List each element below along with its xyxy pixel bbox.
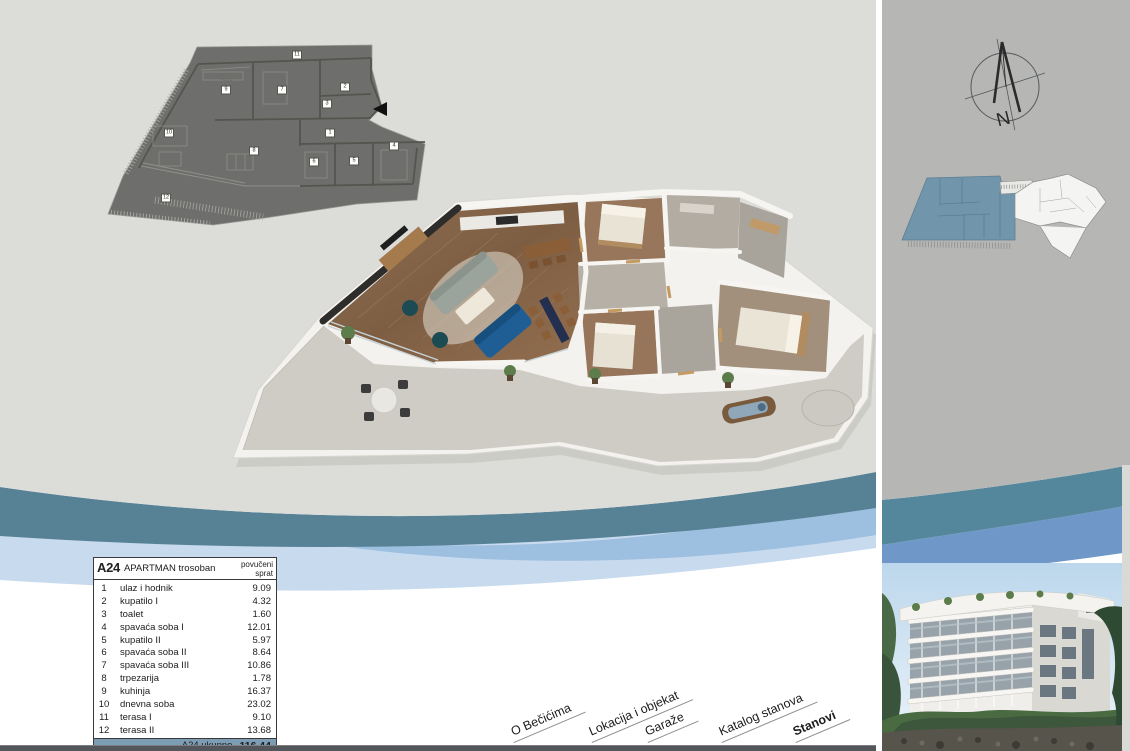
room-name: dnevna soba (114, 699, 229, 710)
room-area: 16.37 (229, 686, 276, 697)
room-area: 13.68 (229, 725, 276, 736)
room-name: spavaća soba III (114, 660, 229, 671)
site-locator-plan (900, 168, 1118, 276)
dimension-label: 340 (288, 77, 296, 82)
room-area: 9.10 (229, 712, 276, 723)
room-name: kupatilo I (114, 596, 229, 607)
table-row: 4spavaća soba I12.01 (94, 621, 276, 634)
room-number: 2 (340, 83, 350, 92)
room-number: 1 (325, 129, 335, 138)
table-row: 5kupatilo II5.97 (94, 634, 276, 647)
bottom-bar (0, 745, 876, 751)
table-row: 11terasa I9.10 (94, 711, 276, 724)
table-row: 6spavaća soba II8.64 (94, 646, 276, 659)
table-row: 2kupatilo I4.32 (94, 595, 276, 608)
room-number: 7 (277, 86, 287, 95)
room-number: 9 (221, 86, 231, 95)
room-number: 11 (292, 51, 302, 60)
column-header-line1: povučeni (241, 560, 273, 569)
room-name: terasa I (114, 712, 229, 723)
room-area: 1.60 (229, 609, 276, 620)
room-number: 4 (389, 142, 399, 151)
apartment-area-table: A24 APARTMAN trosoban povučeni sprat 1ul… (93, 557, 277, 751)
row-number: 4 (94, 622, 114, 633)
photo-right-margin (1122, 465, 1130, 751)
room-name: spavaća soba I (114, 622, 229, 633)
room-area: 5.97 (229, 635, 276, 646)
room-number: 12 (161, 194, 171, 203)
highlighted-apartment-shape (902, 176, 1015, 240)
floor-plan-2d: 1 2 3 4 5 6 7 8 9 10 11 12 480.5 340 514… (95, 28, 440, 253)
floor-plan-2d-drawing (95, 28, 440, 253)
room-area: 4.32 (229, 596, 276, 607)
area-table-header: A24 APARTMAN trosoban povučeni sprat (94, 558, 276, 580)
room-number: 10 (164, 129, 174, 138)
row-number: 12 (94, 725, 114, 736)
row-number: 1 (94, 583, 114, 594)
row-number: 6 (94, 647, 114, 658)
unit-code: A24 (97, 560, 120, 575)
adjacent-apartment-outline (1015, 174, 1106, 258)
compass-icon: N (963, 35, 1048, 130)
row-number: 2 (94, 596, 114, 607)
row-number: 10 (94, 699, 114, 710)
room-number: 8 (249, 147, 259, 156)
room-number: 3 (322, 100, 332, 109)
room-name: toalet (114, 609, 229, 620)
table-row: 1ulaz i hodnik9.09 (94, 582, 276, 595)
table-row: 12terasa II13.68 (94, 724, 276, 737)
room-number: 5 (349, 157, 359, 166)
right-panel: N (882, 0, 1130, 751)
room-number: 6 (309, 158, 319, 167)
room-area: 10.86 (229, 660, 276, 671)
room-area: 12.01 (229, 622, 276, 633)
table-row: 10dnevna soba23.02 (94, 698, 276, 711)
row-number: 7 (94, 660, 114, 671)
room-name: terasa II (114, 725, 229, 736)
table-row: 3toalet1.60 (94, 608, 276, 621)
room-name: kupatilo II (114, 635, 229, 646)
dimension-label: 480.5 (221, 77, 232, 82)
room-area: 23.02 (229, 699, 276, 710)
area-table-rows: 1ulaz i hodnik9.09 2kupatilo I4.32 3toal… (94, 580, 276, 738)
dimension-label: 514.5 (225, 176, 236, 181)
dimension-label: 300 (387, 176, 395, 181)
room-area: 8.64 (229, 647, 276, 658)
table-row: 7spavaća soba III10.86 (94, 659, 276, 672)
room-name: trpezarija (114, 673, 229, 684)
row-number: 3 (94, 609, 114, 620)
compass-north-label: N (994, 108, 1012, 130)
area-column-header: povučeni sprat (241, 560, 273, 578)
row-number: 8 (94, 673, 114, 684)
table-row: 9kuhinja16.37 (94, 685, 276, 698)
dimension-label: 298 (293, 176, 301, 181)
row-number: 9 (94, 686, 114, 697)
main-panel: 1 2 3 4 5 6 7 8 9 10 11 12 480.5 340 514… (0, 0, 876, 751)
column-header-line2: sprat (255, 569, 273, 578)
table-row: 8trpezarija1.78 (94, 672, 276, 685)
room-name: kuhinja (114, 686, 229, 697)
room-name: spavaća soba II (114, 647, 229, 658)
room-area: 9.09 (229, 583, 276, 594)
apartment-type-label: APARTMAN trosoban (124, 563, 241, 574)
row-number: 11 (94, 712, 114, 723)
building-photo (882, 563, 1122, 751)
row-number: 5 (94, 635, 114, 646)
room-area: 1.78 (229, 673, 276, 684)
room-name: ulaz i hodnik (114, 583, 229, 594)
